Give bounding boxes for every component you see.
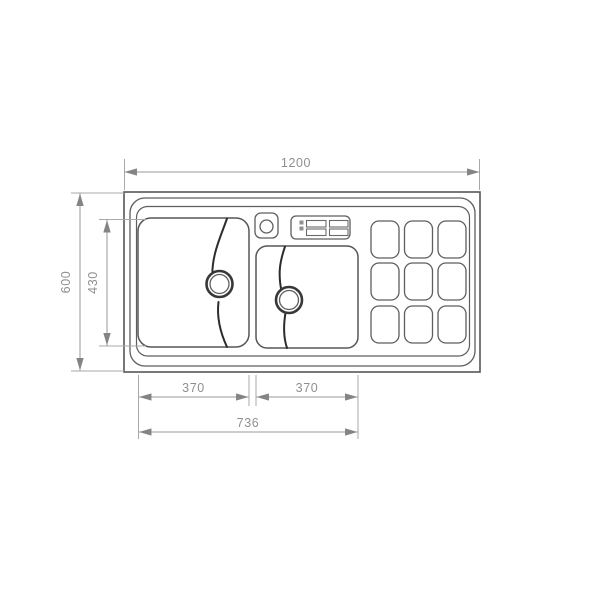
dimension-label-bowl-depth: 430 — [86, 271, 100, 294]
drainer-square — [371, 263, 399, 300]
drainer-square — [405, 263, 433, 300]
dim-left-bowl-width: 370 — [139, 381, 249, 397]
drainer-square — [371, 306, 399, 343]
control-panel-slot — [307, 221, 327, 228]
tap-hole-circle — [260, 220, 273, 233]
control-panel-button-bottom — [300, 227, 304, 231]
control-panel-button-top — [300, 221, 304, 225]
control-panel-slot — [307, 229, 327, 236]
sink-body — [124, 192, 480, 372]
left-bowl-crease-lower — [218, 302, 227, 347]
sink-technical-drawing: 1200 600 430 370 — [0, 0, 600, 600]
drainer-square — [405, 306, 433, 343]
dim-bowls-total-width: 736 — [139, 416, 358, 432]
sink-outer-edge — [124, 192, 480, 372]
dimension-label-left-bowl-width: 370 — [182, 381, 205, 395]
drainer-square — [438, 221, 466, 258]
right-bowl-crease-lower — [284, 310, 287, 348]
tap-hole — [255, 213, 278, 238]
right-bowl-crease-upper — [280, 247, 285, 292]
drainer-square — [405, 221, 433, 258]
drawing-canvas: 1200 600 430 370 — [0, 0, 600, 600]
dimension-label-bowls-total-width: 736 — [237, 416, 260, 430]
dim-overall-width: 1200 — [125, 156, 480, 190]
right-bowl-outline — [256, 246, 358, 348]
control-panel — [291, 216, 350, 239]
tap-hole-plate — [255, 213, 278, 238]
dimension-label-right-bowl-width: 370 — [296, 381, 319, 395]
drainer-square — [371, 221, 399, 258]
left-bowl-crease-upper — [212, 219, 227, 279]
control-panel-slot — [330, 221, 349, 228]
drainer-square — [438, 263, 466, 300]
drainer-square — [438, 306, 466, 343]
control-panel-slot — [330, 229, 349, 236]
dimension-label-overall-depth: 600 — [59, 271, 73, 294]
right-bowl — [256, 246, 358, 348]
dim-right-bowl-width: 370 — [257, 381, 358, 397]
drainer-grid — [371, 221, 466, 343]
dimension-label-overall-width: 1200 — [281, 156, 311, 170]
left-bowl — [138, 218, 249, 347]
